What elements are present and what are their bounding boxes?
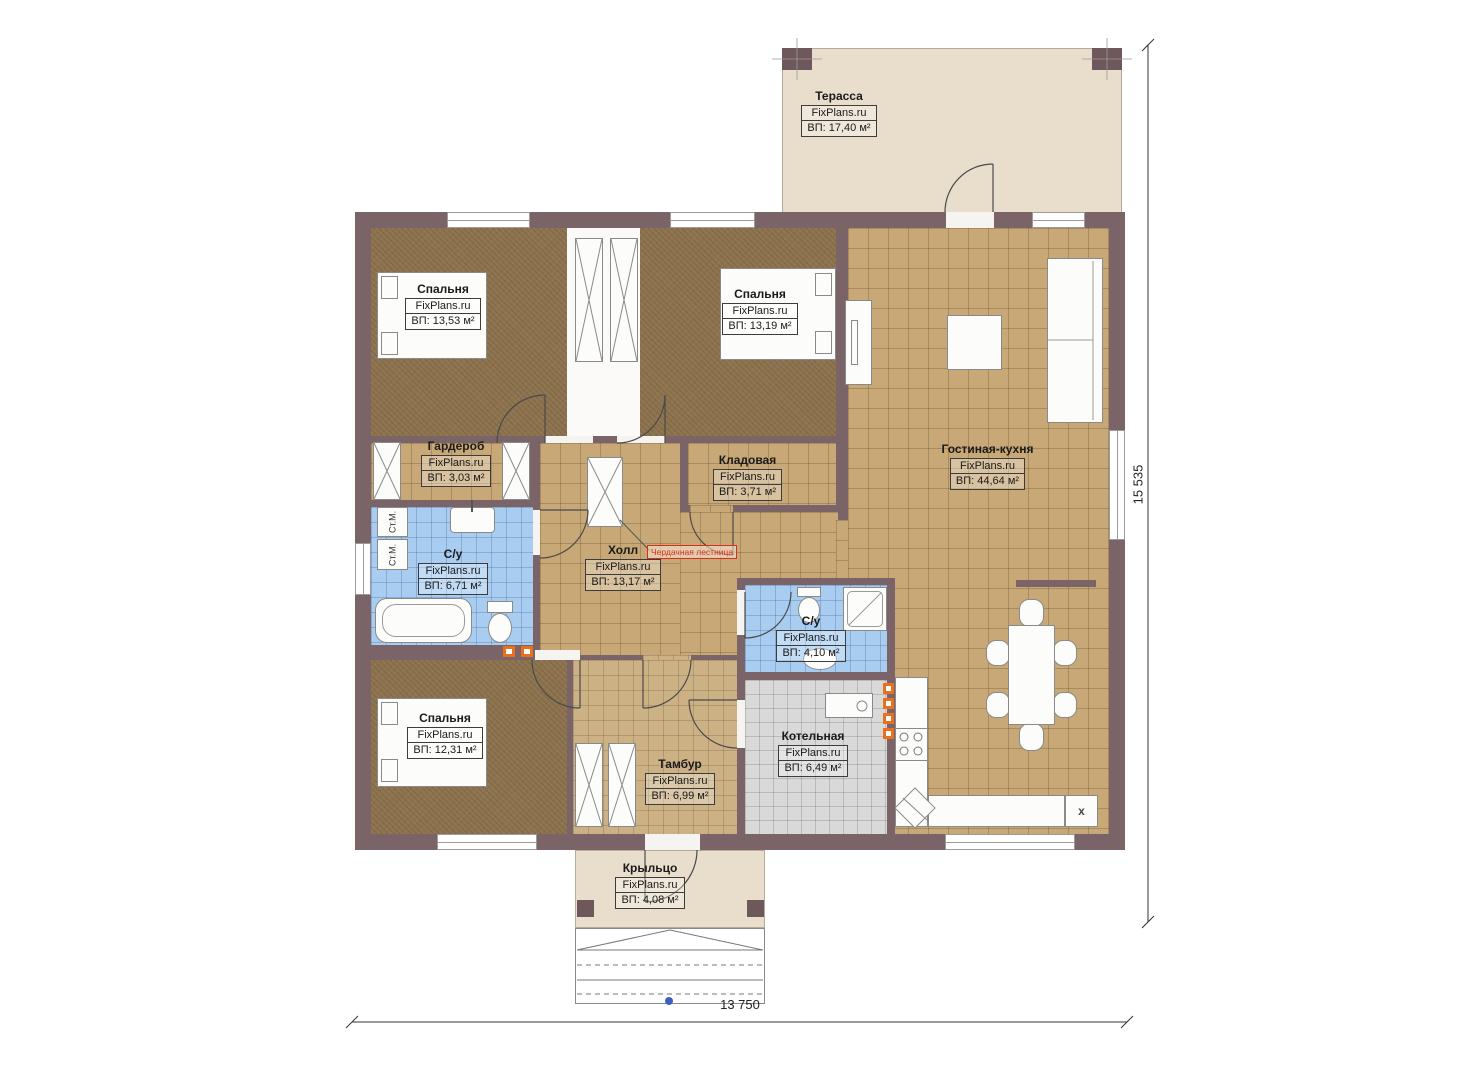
attic-hatch [587,457,623,527]
entry-door-opening [645,834,700,850]
washing-machine: Ст.М. [377,507,408,537]
stove [895,728,928,761]
room-label-bathroom2: С/у FixPlans.ruВП: 4,10 м² [775,615,847,662]
room-label-wardrobe: Гардероб FixPlans.ruВП: 3,03 м² [410,440,502,487]
window [355,543,371,595]
fridge-label: x [1078,804,1085,818]
kitchen-wall-stub [1016,580,1096,587]
interior-wall [745,672,887,680]
sofa [1047,258,1103,423]
bathtub-inner [382,604,465,637]
porch-post [577,900,594,917]
room-label-bedroom2: Спальня FixPlans.ruВП: 13,19 м² [710,288,810,335]
storage-door-opening [690,505,733,512]
boiler-door-opening [737,700,745,748]
bed-pillow [815,273,832,296]
window [1032,212,1085,228]
room-label-living-kitchen: Гостиная-кухня FixPlans.ruВП: 44,64 м² [920,443,1055,490]
washing-machine-label: Ст.М. [378,540,407,569]
coffee-table [947,315,1002,370]
kitchen-counter [928,795,1065,827]
chair [986,640,1010,666]
bathroom1-door-opening [533,510,540,555]
hall-living-passage [836,520,848,585]
porch-steps [575,928,765,1004]
dimension-width: 13 750 [705,997,775,1012]
toilet [487,601,513,613]
toilet-bowl [488,613,512,643]
window [670,212,755,228]
room-label-vestibule: Тамбур FixPlans.ruВП: 6,99 м² [636,758,724,805]
radiator [883,683,894,694]
chair [1019,599,1044,627]
porch-post [747,900,764,917]
radiator [883,698,894,709]
bed-pillow [381,759,398,782]
wardrobe-unit [575,743,603,827]
toilet [797,587,821,597]
chair [1053,640,1077,666]
attic-ladder-annotation: Чердачная лестница [647,545,737,559]
chair [1019,723,1044,751]
radiator [883,713,894,724]
wardrobe-unit [610,238,638,362]
dining-table [1008,625,1055,725]
terrace-post [782,48,812,70]
bed-pillow [381,332,398,355]
bed-pillow [815,331,832,354]
bedroom3-door-opening [535,650,580,660]
fridge: x [1065,795,1098,827]
wardrobe-unit [575,238,603,362]
bathroom2-door-opening [737,590,745,635]
room-label-porch: Крыльцо FixPlans.ruВП: 4,08 м² [605,862,695,909]
bedroom1-door-opening [545,436,593,443]
sink [450,507,495,533]
room-label-bedroom1: Спальня FixPlans.ruВП: 13,53 м² [393,283,493,330]
window [447,212,530,228]
room-label-terrace: Терасса FixPlans.ruВП: 17,40 м² [783,90,895,137]
radiator [521,646,533,657]
washing-machine-label: Ст.М. [378,508,407,536]
radiator [503,646,515,657]
dimension-height: 15 535 [1131,455,1146,515]
tv [851,320,858,365]
window [437,834,537,850]
wardrobe-unit [502,442,530,500]
room-label-bathroom1: С/у FixPlans.ruВП: 6,71 м² [408,548,498,595]
floor-plan: x Ст.М. Ст.М. [0,0,1474,1080]
radiator [883,728,894,739]
room-label-boiler: Котельная FixPlans.ruВП: 6,49 м² [768,730,858,777]
chair [1053,692,1077,718]
terrace-post [1092,48,1122,70]
room-label-storage: Кладовая FixPlans.ruВП: 3,71 м² [700,454,795,501]
wardrobe-unit [373,442,401,500]
boiler-unit [825,693,873,718]
shower-tray-inner [847,591,883,627]
terrace-door-opening [946,212,994,228]
vestibule-hall-door-opening [643,655,691,660]
window [945,834,1075,850]
bedroom2-door-opening [617,436,665,443]
interior-wall [737,578,895,585]
wardrobe-unit [608,743,636,827]
chair [986,692,1010,718]
room-label-bedroom3: Спальня FixPlans.ruВП: 12,31 м² [395,712,495,759]
tv-stand [845,300,872,385]
window [1109,430,1125,540]
washing-machine: Ст.М. [377,539,408,570]
